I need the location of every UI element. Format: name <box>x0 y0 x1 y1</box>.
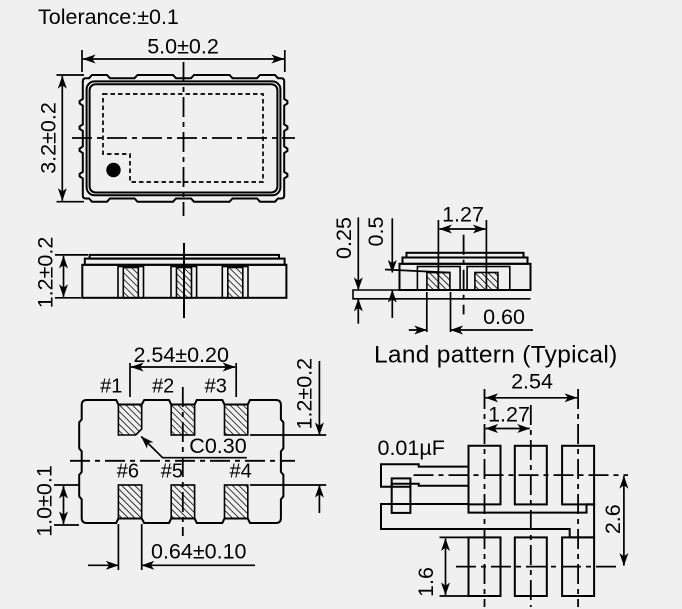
svg-text:0.60: 0.60 <box>483 305 525 329</box>
svg-text:0.01µF: 0.01µF <box>378 436 445 460</box>
svg-text:0.25: 0.25 <box>332 217 356 259</box>
svg-text:1.0±0.1: 1.0±0.1 <box>33 465 57 537</box>
svg-text:1.27: 1.27 <box>442 202 484 226</box>
svg-text:5.0±0.2: 5.0±0.2 <box>147 35 219 59</box>
svg-text:1.6: 1.6 <box>414 567 438 597</box>
svg-text:1.2±0.2: 1.2±0.2 <box>34 237 58 309</box>
svg-text:#2: #2 <box>152 376 174 398</box>
svg-text:2.54±0.20: 2.54±0.20 <box>133 343 229 367</box>
svg-text:C0.30: C0.30 <box>189 434 246 458</box>
svg-text:#1: #1 <box>100 376 122 398</box>
svg-text:#6: #6 <box>117 461 139 483</box>
svg-text:Land pattern (Typical): Land pattern (Typical) <box>374 342 618 369</box>
svg-text:0.64±0.10: 0.64±0.10 <box>151 540 247 564</box>
svg-text:0.5: 0.5 <box>364 217 388 247</box>
svg-text:1.27: 1.27 <box>488 403 530 427</box>
svg-text:#4: #4 <box>229 461 251 483</box>
svg-text:#3: #3 <box>205 376 227 398</box>
svg-text:2.54: 2.54 <box>511 370 553 394</box>
svg-text:3.2±0.2: 3.2±0.2 <box>37 102 61 174</box>
svg-text:1.2±0.2: 1.2±0.2 <box>293 358 317 430</box>
svg-text:2.6: 2.6 <box>601 504 625 534</box>
svg-text:Tolerance:±0.1: Tolerance:±0.1 <box>38 5 179 29</box>
svg-text:#5: #5 <box>161 461 183 483</box>
